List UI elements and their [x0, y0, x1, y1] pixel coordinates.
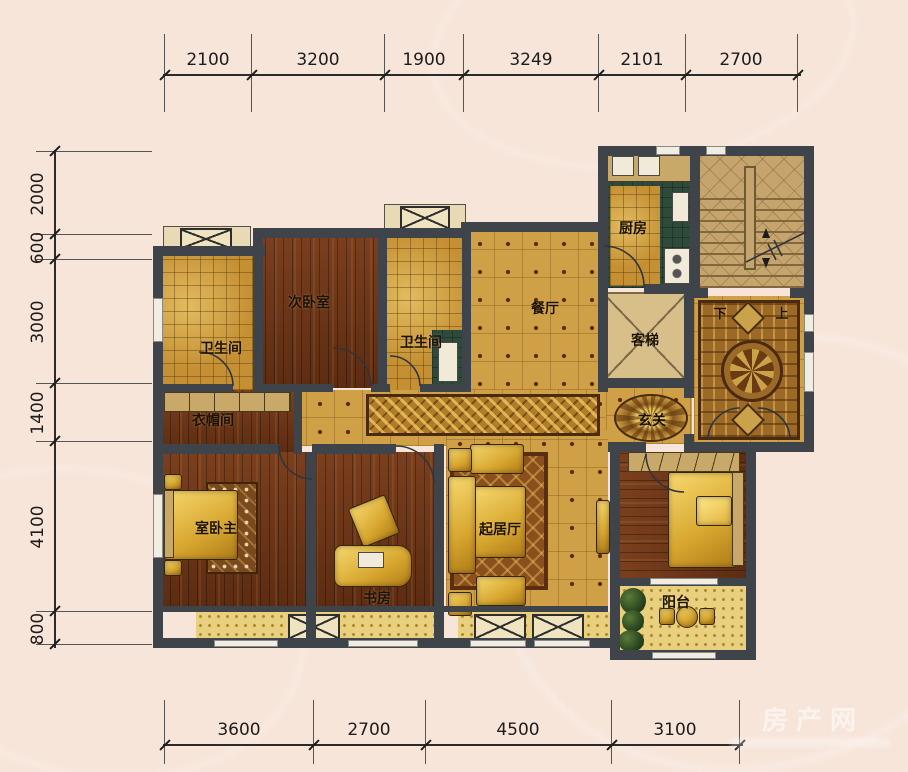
- room-label-foyer: 玄关: [622, 410, 682, 430]
- room-label-balcony: 阳台: [646, 592, 706, 612]
- room-label-kitchen: 厨房: [603, 218, 663, 238]
- room-label-bathroom-2: 卫生间: [386, 332, 456, 352]
- room-label-secondary-bedroom: 次卧室: [276, 292, 342, 312]
- room-label-living: 起居厅: [467, 519, 533, 539]
- watermark-url-bar: [730, 738, 890, 747]
- stair-up-label: 上: [772, 303, 792, 322]
- room-label-bathroom-1: 卫生间: [186, 338, 256, 358]
- room-label-cloakroom: 衣帽间: [178, 410, 248, 430]
- watermark-text: 房产网: [762, 700, 864, 737]
- floor-plan-canvas: 2100 3200 1900 3249 2101 2700 2000 600 3…: [0, 0, 908, 772]
- room-label-dining: 餐厅: [515, 298, 575, 318]
- room-label-study: 书房: [346, 588, 408, 608]
- door-arcs-layer: [0, 0, 908, 772]
- room-label-master-bedroom: 室卧主: [180, 518, 252, 538]
- stair-down-label: 下: [710, 303, 730, 322]
- room-label-elevator: 客梯: [615, 330, 675, 350]
